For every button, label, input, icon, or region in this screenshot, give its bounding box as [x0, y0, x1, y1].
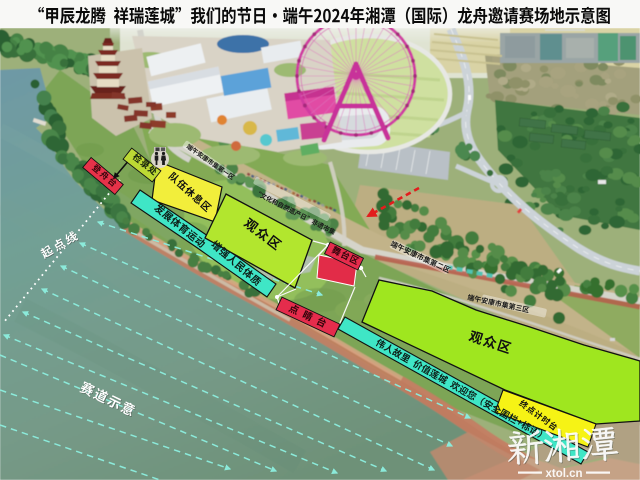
svg-text:xtol.cn: xtol.cn — [545, 468, 582, 480]
